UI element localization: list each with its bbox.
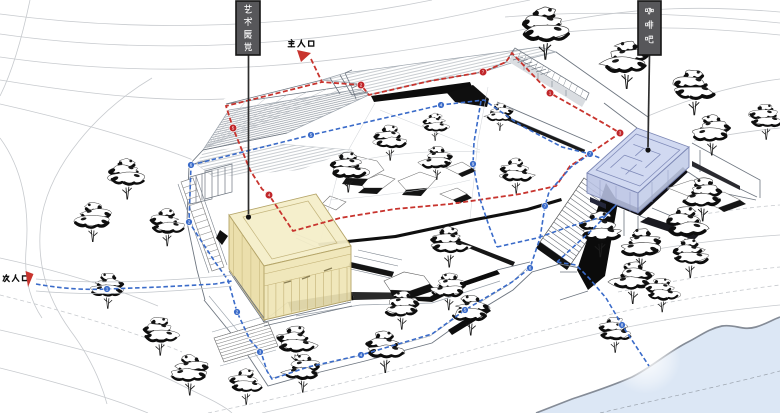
svg-text:1: 1 — [106, 287, 109, 292]
svg-text:5: 5 — [232, 126, 235, 131]
svg-text:7: 7 — [544, 204, 547, 209]
svg-text:6: 6 — [190, 163, 193, 168]
svg-text:1: 1 — [549, 91, 552, 96]
svg-text:7: 7 — [482, 70, 485, 75]
svg-text:8: 8 — [621, 323, 624, 328]
svg-text:2: 2 — [188, 220, 191, 225]
svg-text:9: 9 — [472, 162, 475, 167]
svg-text:7: 7 — [589, 152, 592, 157]
svg-text:4: 4 — [440, 103, 443, 108]
svg-text:2: 2 — [236, 310, 239, 315]
svg-text:5: 5 — [464, 308, 467, 313]
svg-text:3: 3 — [259, 350, 262, 355]
svg-text:4: 4 — [360, 353, 363, 358]
svg-text:4: 4 — [268, 193, 271, 198]
svg-text:3: 3 — [619, 131, 622, 136]
svg-text:2: 2 — [360, 83, 363, 88]
svg-text:5: 5 — [310, 133, 313, 138]
svg-text:6: 6 — [529, 266, 532, 271]
